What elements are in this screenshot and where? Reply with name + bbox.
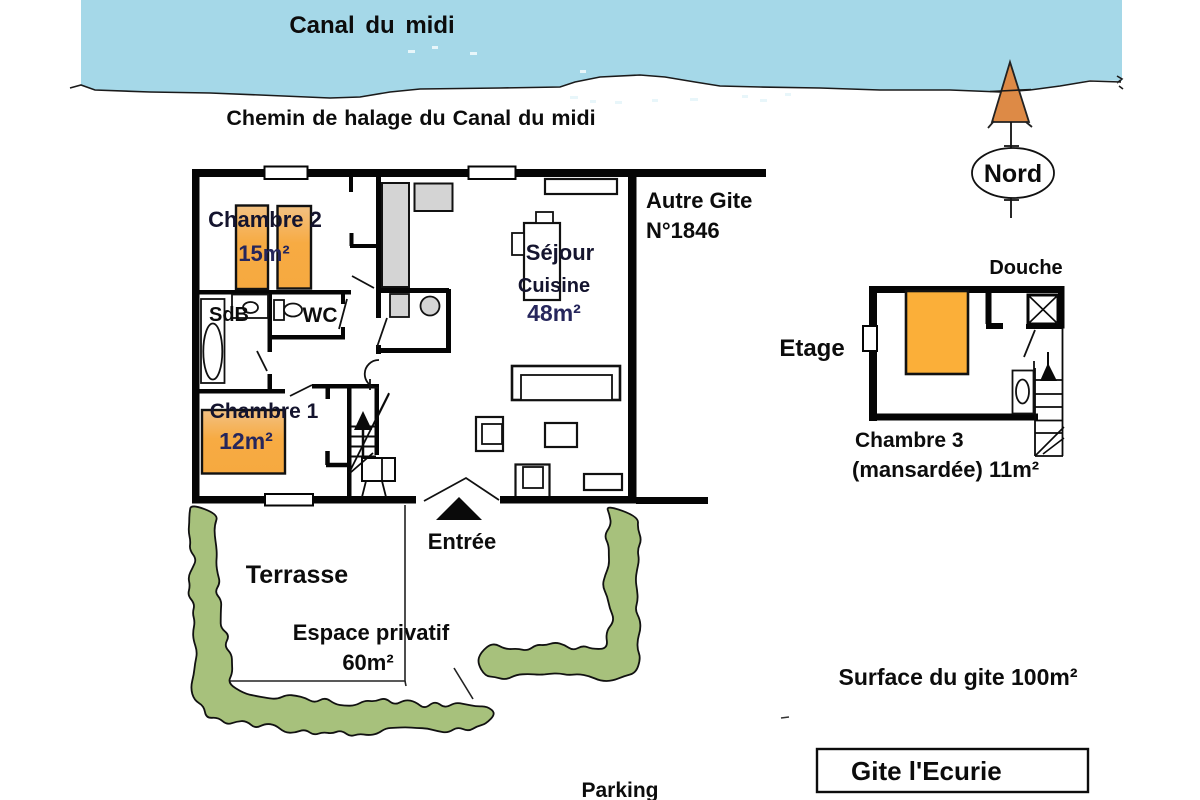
svg-text:Autre Gite: Autre Gite <box>646 188 752 213</box>
svg-text:Séjour: Séjour <box>526 240 595 265</box>
svg-text:Surface du gite 100m²: Surface du gite 100m² <box>838 664 1077 690</box>
svg-text:48m²: 48m² <box>527 300 581 326</box>
svg-text:Chemin de halage du Canal du m: Chemin de halage du Canal du midi <box>226 106 595 130</box>
svg-text:Espace privatif: Espace privatif <box>293 620 450 645</box>
svg-text:WC: WC <box>303 304 338 327</box>
svg-text:Entrée: Entrée <box>428 529 496 554</box>
svg-text:Terrasse: Terrasse <box>246 561 348 589</box>
svg-text:N°1846: N°1846 <box>646 218 720 243</box>
svg-text:SdB: SdB <box>209 304 249 326</box>
svg-text:12m²: 12m² <box>219 428 273 454</box>
svg-text:60m²: 60m² <box>342 650 393 675</box>
svg-text:Nord: Nord <box>984 160 1042 188</box>
svg-text:Chambre 1: Chambre 1 <box>210 400 319 423</box>
svg-text:Gite l'Ecurie: Gite l'Ecurie <box>851 756 1002 786</box>
svg-text:(mansardée) 11m²: (mansardée) 11m² <box>852 457 1039 482</box>
svg-text:Chambre 3: Chambre 3 <box>855 429 964 452</box>
svg-text:Chambre 2: Chambre 2 <box>208 207 322 232</box>
svg-text:Etage: Etage <box>779 335 844 362</box>
svg-text:15m²: 15m² <box>238 241 289 266</box>
svg-text:Canal du midi: Canal du midi <box>289 12 454 39</box>
svg-text:Douche: Douche <box>989 257 1062 279</box>
svg-text:Parking: Parking <box>581 779 658 800</box>
svg-text:Cuisine: Cuisine <box>518 275 590 297</box>
